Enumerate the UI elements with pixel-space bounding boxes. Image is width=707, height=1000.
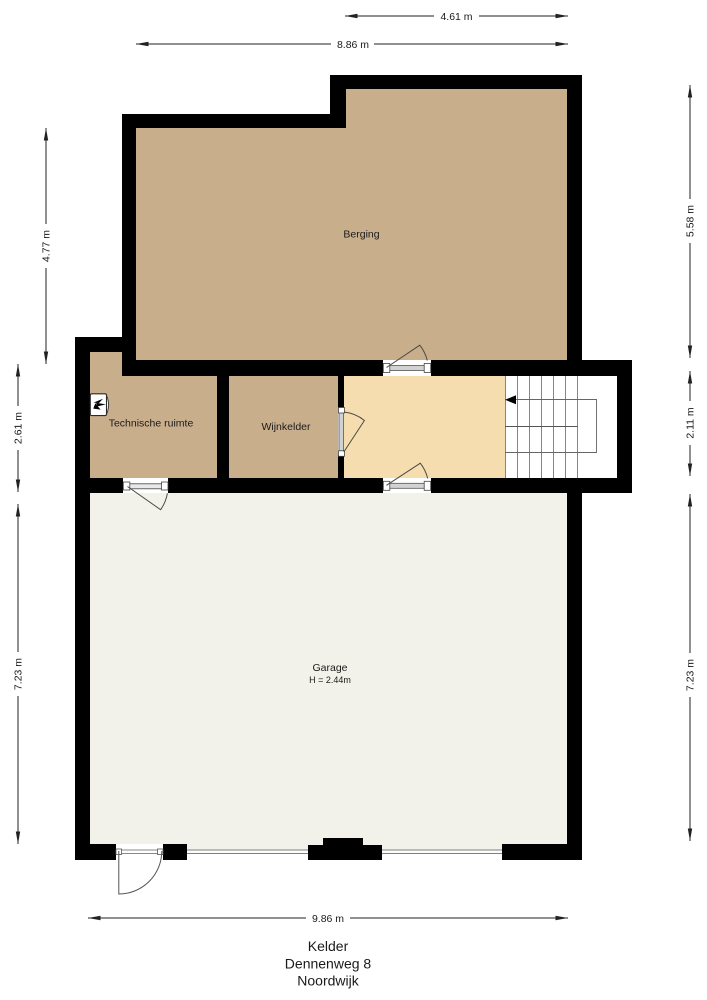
svg-text:Noordwijk: Noordwijk	[297, 973, 359, 989]
svg-text:Garage: Garage	[312, 662, 347, 674]
svg-text:4.77 m: 4.77 m	[41, 230, 53, 262]
svg-text:Dennenweg 8: Dennenweg 8	[285, 955, 372, 971]
svg-text:9.86 m: 9.86 m	[312, 913, 344, 925]
svg-text:2.11 m: 2.11 m	[685, 407, 697, 439]
svg-text:2.61 m: 2.61 m	[13, 412, 25, 444]
svg-text:Kelder: Kelder	[308, 938, 349, 954]
svg-text:Berging: Berging	[343, 229, 379, 241]
svg-text:Technische ruimte: Technische ruimte	[109, 418, 194, 430]
svg-text:7.23 m: 7.23 m	[685, 659, 697, 691]
svg-text:4.61 m: 4.61 m	[440, 11, 472, 23]
svg-text:H = 2.44m: H = 2.44m	[309, 675, 351, 685]
svg-text:8.86 m: 8.86 m	[337, 39, 369, 51]
svg-text:Wijnkelder: Wijnkelder	[261, 421, 311, 433]
svg-text:5.58 m: 5.58 m	[685, 205, 697, 237]
svg-text:7.23 m: 7.23 m	[13, 658, 25, 690]
